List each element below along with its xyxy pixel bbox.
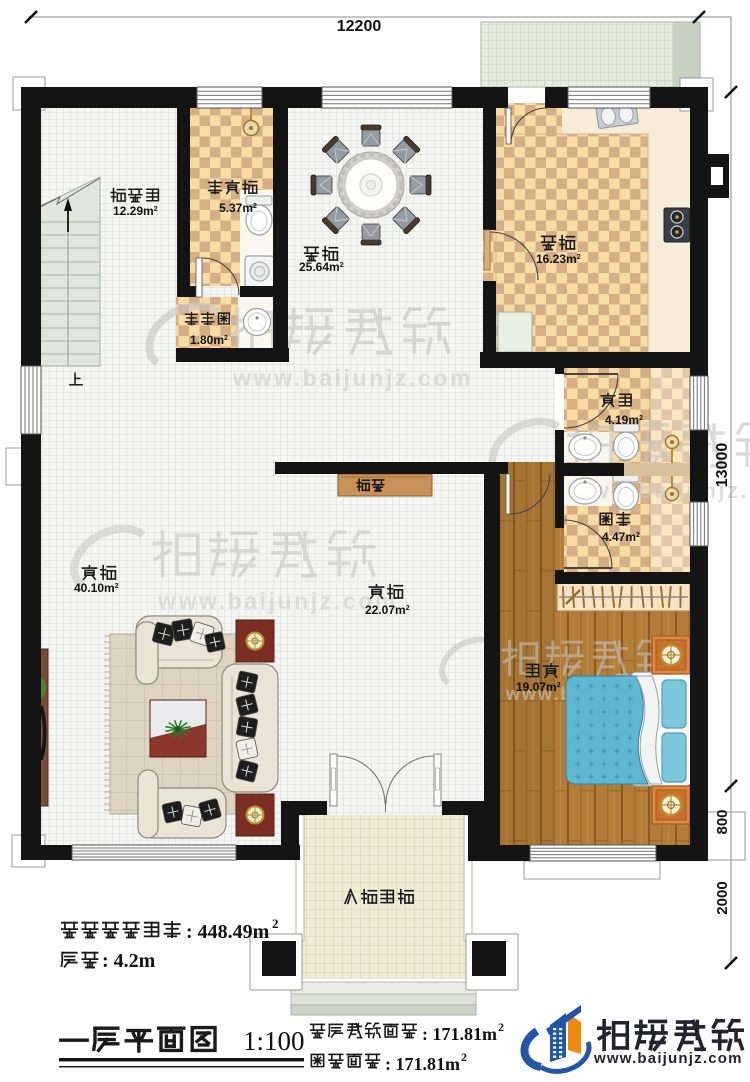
svg-text:: 448.49m: : 448.49m (186, 921, 270, 943)
svg-text:www.baijunjz.com: www.baijunjz.com (593, 1050, 743, 1067)
svg-text:4.47m2: 4.47m2 (602, 530, 640, 544)
svg-text:www.baijunjz.com: www.baijunjz.com (157, 588, 398, 614)
svg-text:40.10m2: 40.10m2 (74, 581, 119, 595)
svg-text:2: 2 (461, 1050, 467, 1064)
svg-text:12200: 12200 (337, 18, 382, 35)
svg-text:2: 2 (498, 1020, 504, 1034)
svg-text:16.23m2: 16.23m2 (536, 252, 581, 266)
svg-text:1.80m2: 1.80m2 (190, 333, 228, 347)
svg-text:22.07m2: 22.07m2 (365, 603, 410, 617)
svg-text:: 171.81m: : 171.81m (422, 1024, 497, 1044)
svg-text:19.07m2: 19.07m2 (516, 680, 561, 694)
svg-text:2000: 2000 (714, 881, 731, 914)
svg-text:2: 2 (272, 916, 279, 931)
svg-text:4.19m2: 4.19m2 (605, 413, 643, 427)
svg-text:5.37m2: 5.37m2 (219, 201, 257, 215)
svg-text:13000: 13000 (714, 443, 731, 488)
svg-text:25.64m2: 25.64m2 (299, 260, 344, 274)
svg-text:12.29m2: 12.29m2 (113, 204, 158, 218)
svg-text:: 4.2m: : 4.2m (102, 950, 156, 972)
svg-text:1:100: 1:100 (243, 1026, 305, 1056)
svg-text:800: 800 (714, 809, 731, 834)
svg-text:www.baijunjz.com: www.baijunjz.com (232, 365, 473, 391)
svg-text:: 171.81m: : 171.81m (385, 1054, 460, 1074)
